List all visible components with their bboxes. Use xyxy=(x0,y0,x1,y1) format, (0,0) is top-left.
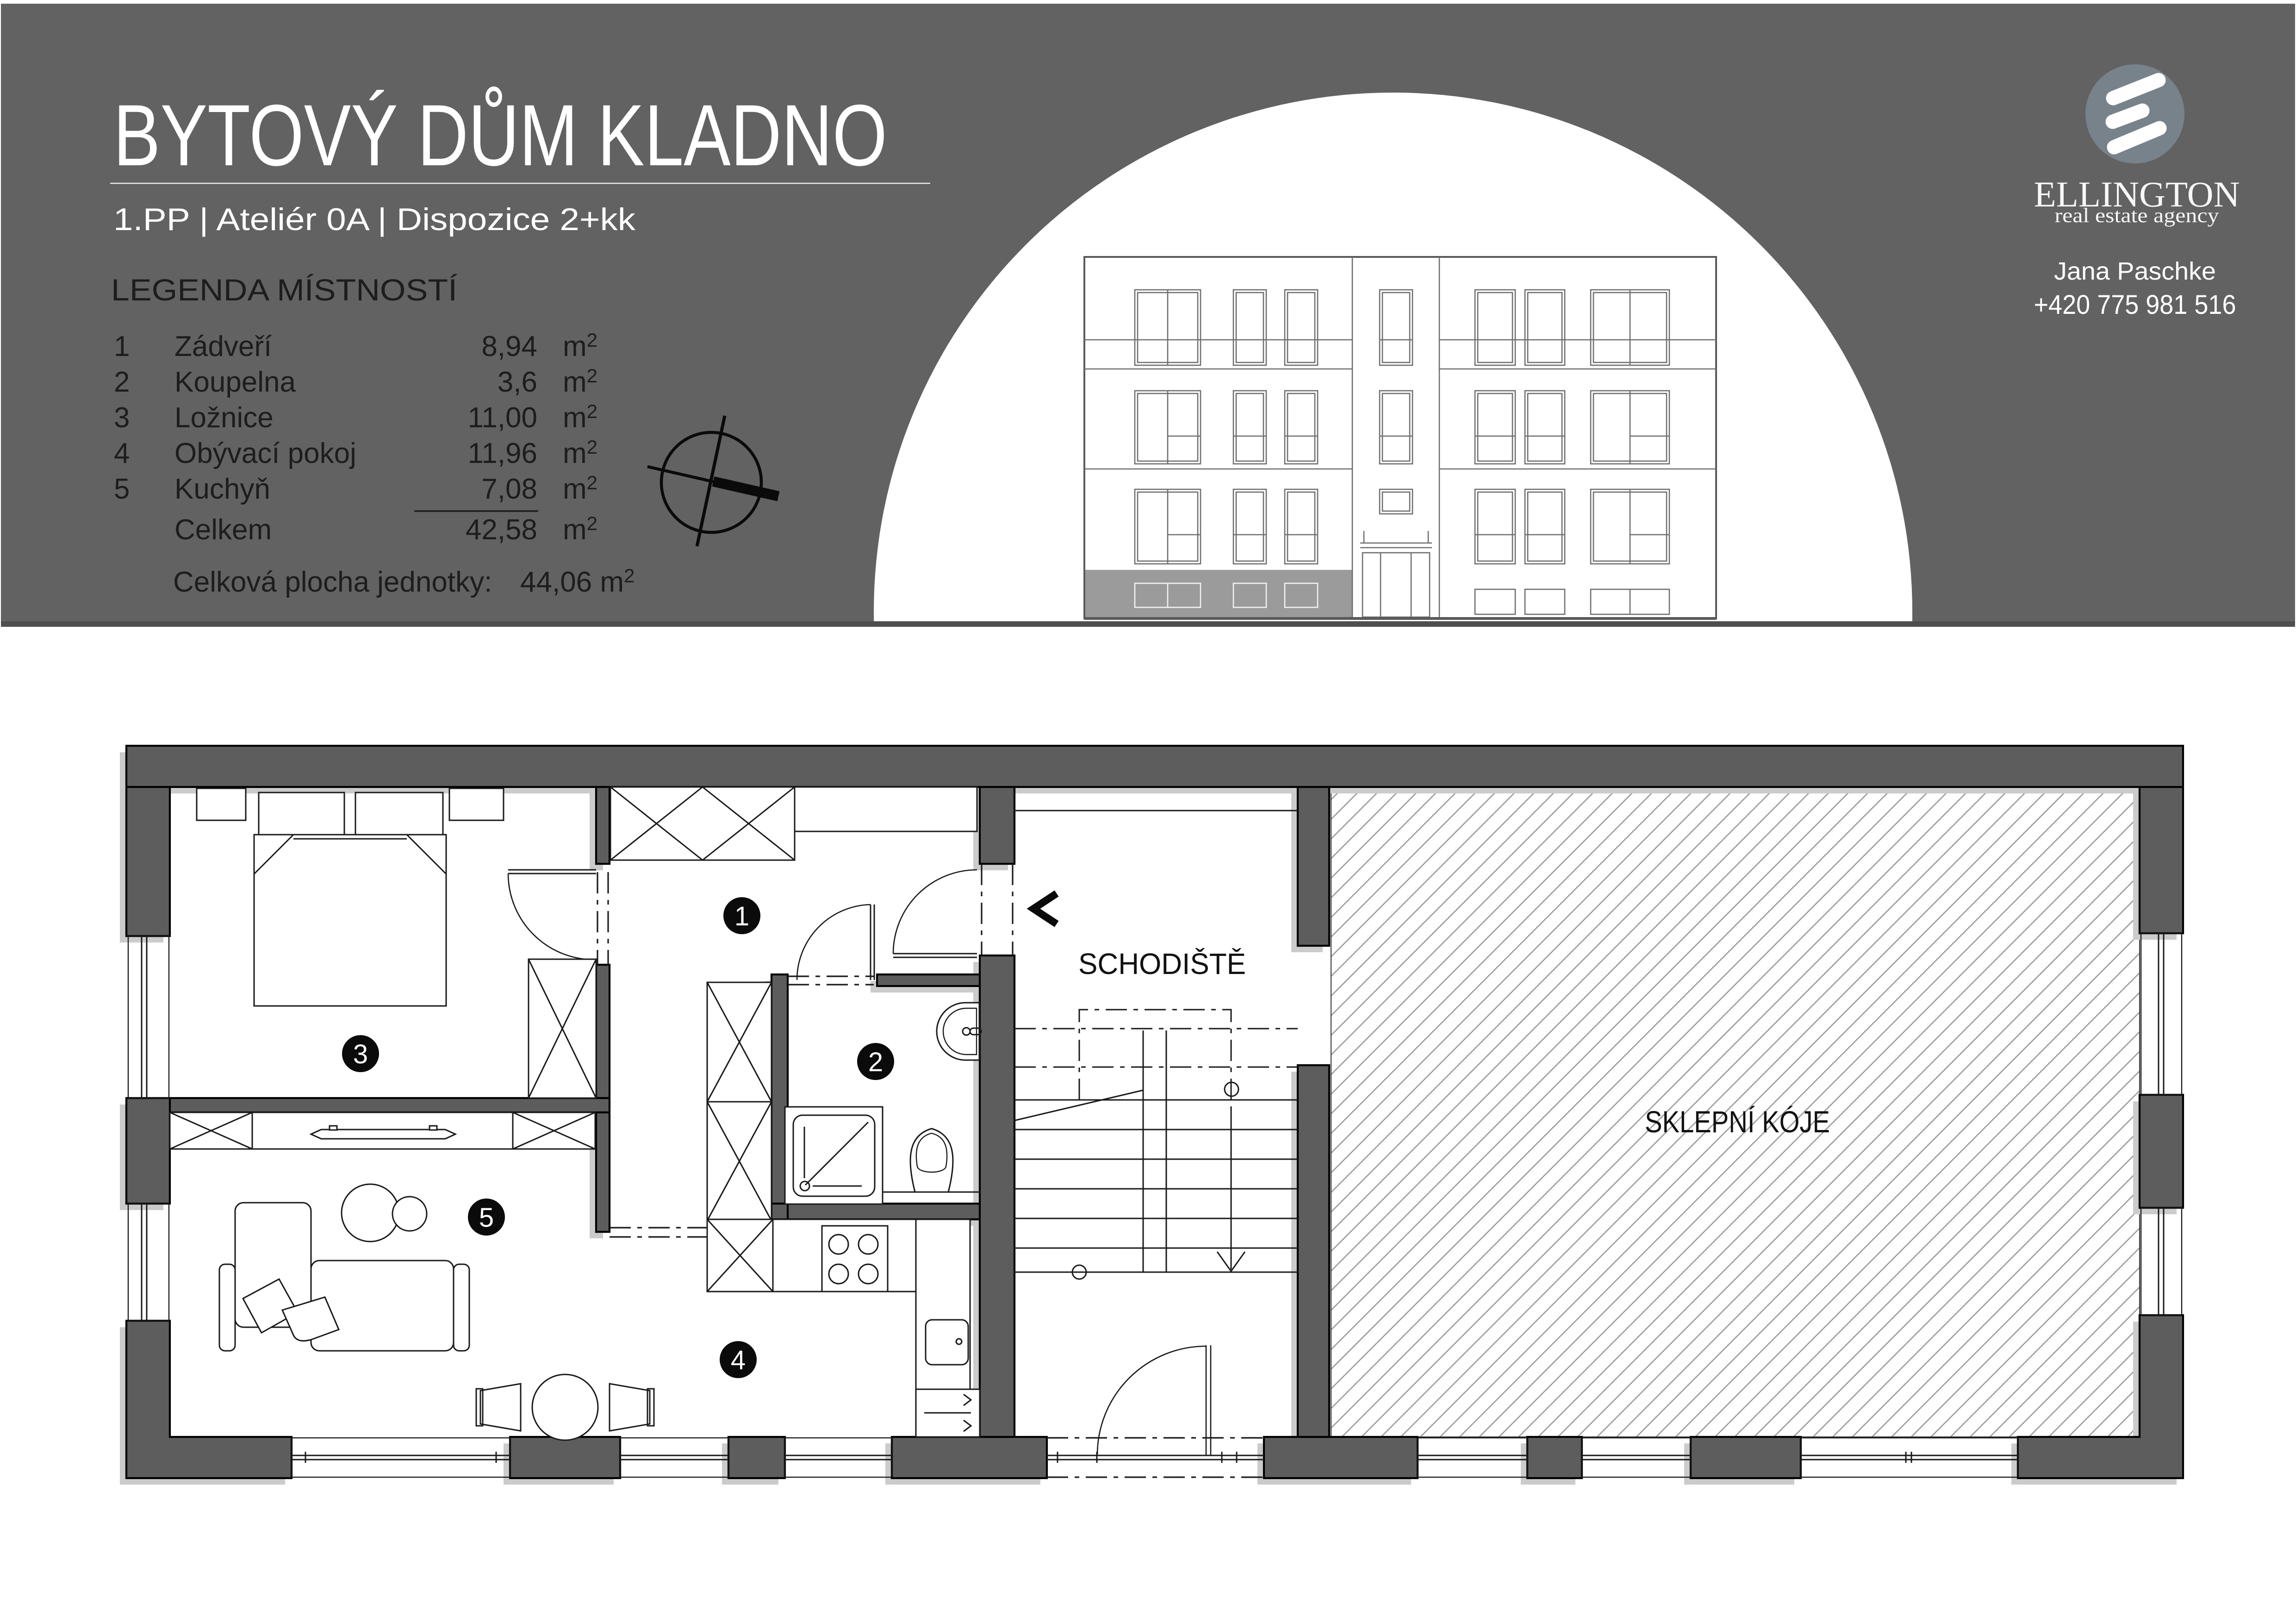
svg-text:4: 4 xyxy=(114,437,130,469)
svg-text:BYTOVÝ DŮM KLADNO: BYTOVÝ DŮM KLADNO xyxy=(113,87,887,184)
svg-text:+420 775 981 516: +420 775 981 516 xyxy=(2034,290,2236,320)
svg-text:Jana Paschke: Jana Paschke xyxy=(2054,257,2216,285)
svg-text:3: 3 xyxy=(114,402,130,434)
svg-text:SKLEPNÍ KÓJE: SKLEPNÍ KÓJE xyxy=(1645,1105,1830,1139)
svg-text:2: 2 xyxy=(114,366,130,398)
svg-text:real estate agency: real estate agency xyxy=(2055,204,2219,227)
svg-text:Kuchyň: Kuchyň xyxy=(174,473,270,505)
svg-text:Celkem: Celkem xyxy=(174,514,272,546)
svg-text:42,58: 42,58 xyxy=(466,514,537,546)
svg-text:5: 5 xyxy=(114,473,130,505)
svg-text:1: 1 xyxy=(114,331,130,362)
svg-text:3,6: 3,6 xyxy=(498,366,537,398)
svg-text:8,94: 8,94 xyxy=(481,331,537,362)
svg-text:Koupelna: Koupelna xyxy=(174,366,296,398)
svg-text:Celková plocha jednotky:: Celková plocha jednotky: xyxy=(173,566,492,598)
svg-text:LEGENDA MÍSTNOSTÍ: LEGENDA MÍSTNOSTÍ xyxy=(111,273,458,307)
svg-text:2: 2 xyxy=(868,1047,883,1077)
svg-text:11,96: 11,96 xyxy=(467,437,537,469)
svg-text:44,06 m2: 44,06 m2 xyxy=(520,565,635,598)
svg-text:1: 1 xyxy=(734,901,749,931)
svg-text:3: 3 xyxy=(353,1039,368,1069)
svg-text:Ložnice: Ložnice xyxy=(174,402,274,434)
svg-text:5: 5 xyxy=(479,1203,494,1233)
svg-text:Zádveří: Zádveří xyxy=(174,331,272,362)
svg-text:4: 4 xyxy=(731,1345,746,1375)
svg-text:Obývací pokoj: Obývací pokoj xyxy=(174,437,356,469)
svg-text:11,00: 11,00 xyxy=(467,402,537,434)
svg-text:SCHODIŠTĚ: SCHODIŠTĚ xyxy=(1078,947,1246,980)
svg-text:1.PP | Ateliér 0A | Dispozice: 1.PP | Ateliér 0A | Dispozice 2+kk xyxy=(113,202,636,237)
svg-text:7,08: 7,08 xyxy=(481,473,537,505)
